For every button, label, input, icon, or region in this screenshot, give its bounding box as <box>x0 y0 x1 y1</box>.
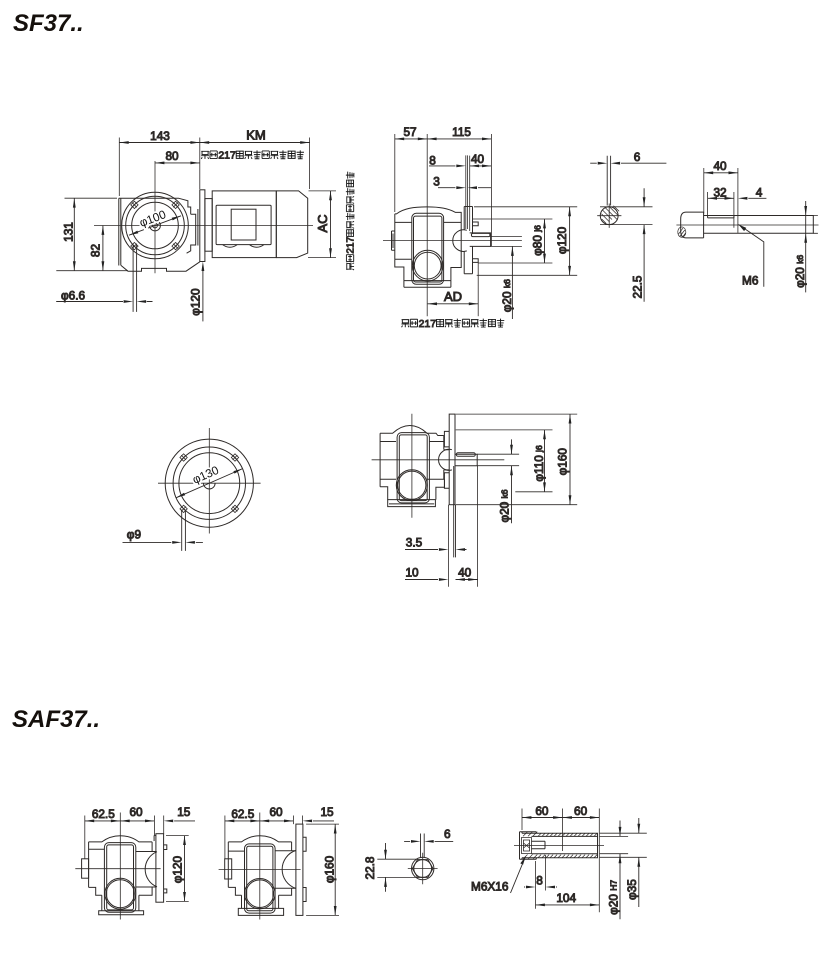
svg-text:62.5: 62.5 <box>231 807 254 821</box>
svg-text:60: 60 <box>535 804 549 818</box>
svg-text:φ110 j6: φ110 j6 <box>532 445 546 482</box>
svg-text:131: 131 <box>61 222 75 242</box>
svg-text:φ20 k6: φ20 k6 <box>498 489 512 522</box>
svg-text:φ20 H7: φ20 H7 <box>607 880 621 915</box>
svg-text:8: 8 <box>536 874 543 888</box>
svg-text:104: 104 <box>556 891 576 905</box>
svg-text:60: 60 <box>574 804 588 818</box>
svg-text:143: 143 <box>150 129 170 143</box>
svg-text:SF37..: SF37.. <box>13 10 84 37</box>
svg-text:40: 40 <box>471 152 485 166</box>
svg-text:15: 15 <box>320 805 334 819</box>
svg-text:40: 40 <box>458 566 472 580</box>
svg-text:6: 6 <box>444 827 451 841</box>
svg-text:φ20 k6: φ20 k6 <box>500 279 514 312</box>
svg-text:AC: AC <box>315 214 330 232</box>
svg-text:φ6.6: φ6.6 <box>61 289 85 303</box>
svg-text:φ120: φ120 <box>555 226 569 254</box>
svg-text:80: 80 <box>165 149 179 163</box>
svg-text:φ9: φ9 <box>127 528 141 542</box>
svg-text:82: 82 <box>88 244 102 257</box>
svg-text:40: 40 <box>713 159 727 173</box>
svg-text:62.5: 62.5 <box>92 807 115 821</box>
svg-text:φ160: φ160 <box>556 448 570 476</box>
svg-text:φ120: φ120 <box>189 288 203 316</box>
svg-text:KM: KM <box>246 128 266 143</box>
svg-text:3: 3 <box>433 175 440 189</box>
svg-text:φ120: φ120 <box>170 856 184 884</box>
svg-text:60: 60 <box>269 805 283 819</box>
svg-text:22.5: 22.5 <box>630 275 644 298</box>
svg-text:32: 32 <box>713 185 726 199</box>
svg-text:SAF37..: SAF37.. <box>12 706 100 733</box>
svg-text:57: 57 <box>403 125 416 139</box>
svg-text:3.5: 3.5 <box>406 536 423 550</box>
svg-text:15: 15 <box>177 805 191 819</box>
svg-text:φ80 j6: φ80 j6 <box>531 225 545 256</box>
svg-text:10: 10 <box>405 566 419 580</box>
svg-text:AD: AD <box>444 289 462 304</box>
svg-text:115: 115 <box>452 125 471 139</box>
svg-text:8: 8 <box>429 154 436 168</box>
svg-text:φ35: φ35 <box>625 879 639 900</box>
svg-text:M6X16: M6X16 <box>471 880 509 894</box>
svg-text:22.8: 22.8 <box>363 856 377 879</box>
svg-text:6: 6 <box>634 150 641 164</box>
svg-text:60: 60 <box>129 805 143 819</box>
svg-text:4: 4 <box>756 185 763 199</box>
svg-text:φ160: φ160 <box>323 855 337 883</box>
svg-text:M6: M6 <box>742 274 759 288</box>
svg-text:φ20 k6: φ20 k6 <box>793 255 807 288</box>
